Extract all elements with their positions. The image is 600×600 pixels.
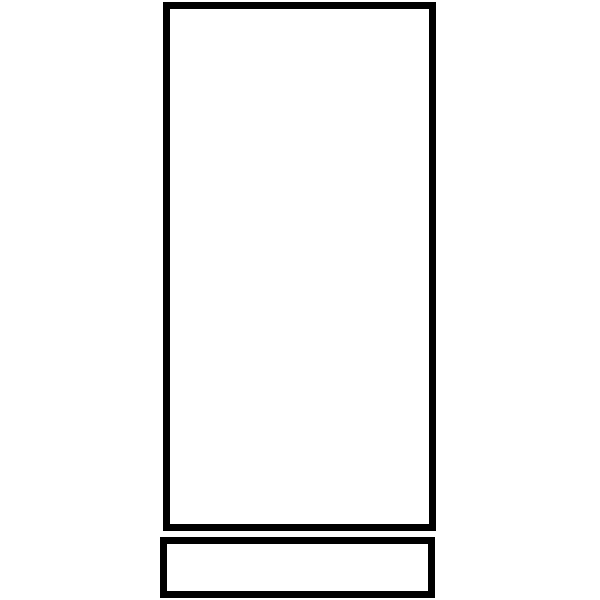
base-rectangle: [160, 537, 435, 598]
tall-rectangle: [163, 2, 436, 531]
drawing-canvas: [0, 0, 600, 600]
